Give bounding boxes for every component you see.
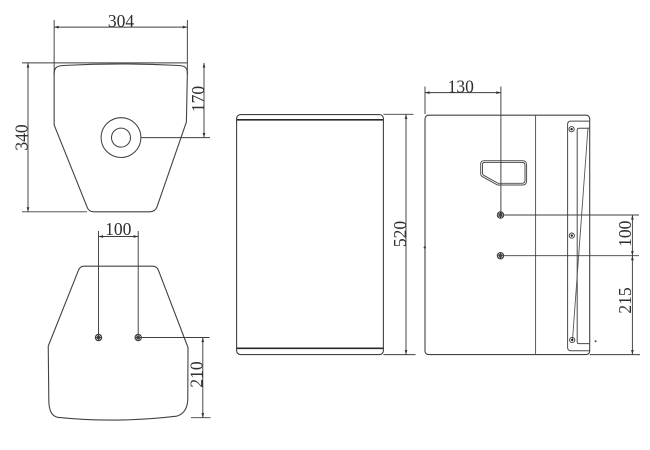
svg-text:170: 170: [188, 86, 208, 113]
svg-text:215: 215: [615, 287, 635, 314]
svg-text:100: 100: [615, 220, 635, 247]
svg-text:130: 130: [448, 76, 475, 96]
svg-text:304: 304: [108, 11, 135, 31]
svg-text:100: 100: [105, 219, 132, 239]
svg-text:210: 210: [186, 361, 206, 388]
svg-text:340: 340: [12, 124, 32, 151]
svg-text:520: 520: [390, 221, 410, 248]
